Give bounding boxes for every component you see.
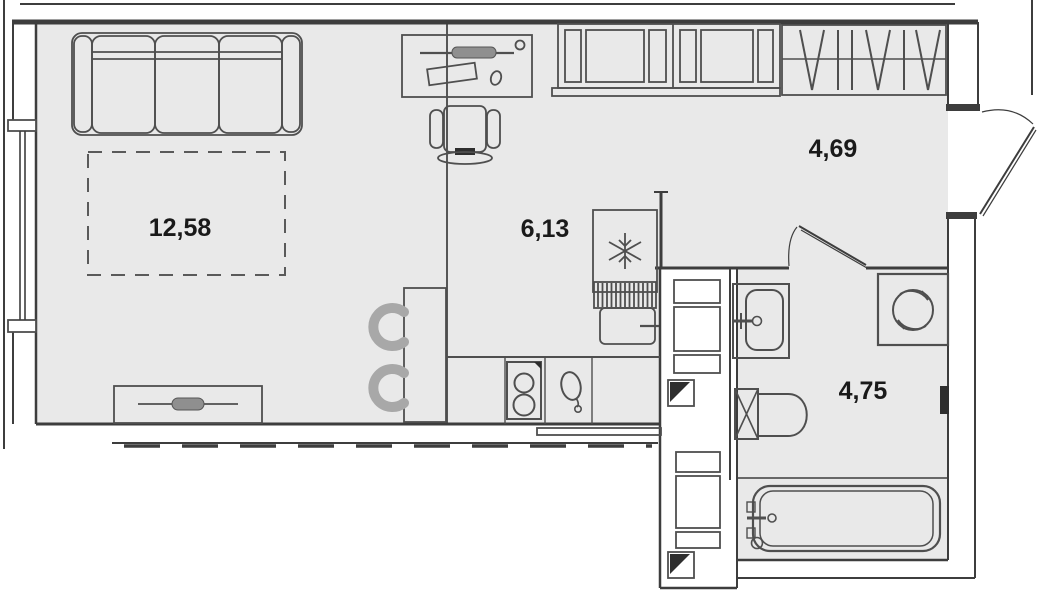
hallway-area-label: 4,69 [809,135,858,163]
dish-dryer [594,282,656,308]
tv-stand [114,386,262,423]
wall-vent [940,386,949,414]
radiator [537,428,661,435]
floor-plan: 12,58 6,13 4,69 4,75 [0,0,1038,600]
living-room-window [8,120,36,332]
floor-plan-drawing: 12,58 6,13 4,69 4,75 [0,0,1038,600]
entrance-door [980,110,1036,216]
room-floors [36,22,948,588]
living-room-area-label: 12,58 [149,214,212,242]
bathroom-area-label: 4,75 [839,377,888,405]
bottom-window [112,443,658,446]
kitchen-area-label: 6,13 [521,215,570,243]
